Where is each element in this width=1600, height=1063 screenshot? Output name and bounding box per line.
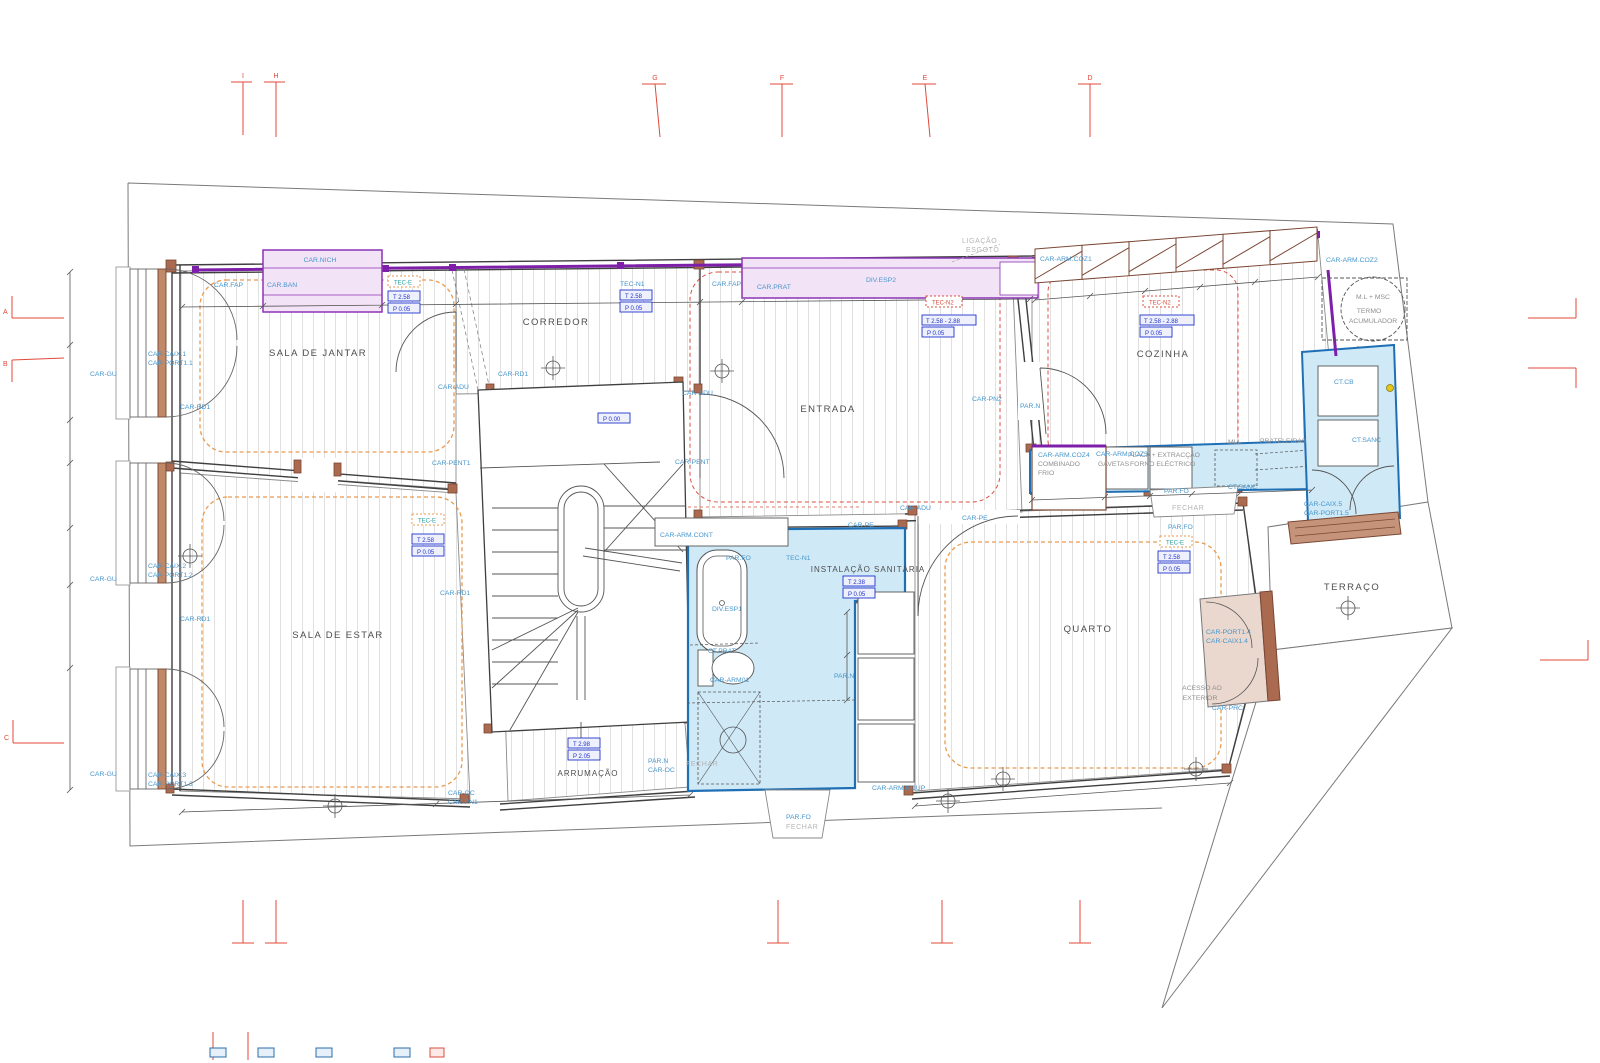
tag-tec-n1-corridor: TEC-N1 (620, 281, 645, 288)
svg-text:TEC-N2: TEC-N2 (932, 301, 954, 307)
label-gavetas: GAVETAS (1098, 461, 1130, 468)
tag-car-oc-1: CAR-OC (448, 790, 475, 797)
svg-text:P 0.05: P 0.05 (393, 307, 411, 313)
tag-car-port1-3: CAR-PORT1.3 (148, 781, 193, 788)
svg-text:T 2.58: T 2.58 (1163, 555, 1181, 561)
room-label-cozinha: COZINHA (1137, 349, 1190, 360)
tag-car-prat: CAR.PRAT (757, 284, 791, 291)
tag-car-gu-3: CAR-GU (90, 771, 117, 778)
room-label-entrada: ENTRADA (800, 404, 855, 415)
label-ligacao: LIGAÇÃO (962, 236, 997, 245)
tag-ct-prat: CT.PRAT (708, 648, 736, 655)
svg-text:TEC-E: TEC-E (394, 281, 412, 287)
tag-ct-cb: CT.CB (1334, 379, 1354, 386)
tag-car-caix3: CAR-CAIX.3 (148, 772, 186, 779)
tag-car-arm-roup: CAR-ARM.ROUP (872, 785, 926, 792)
svg-text:T 2.58: T 2.58 (417, 538, 435, 544)
tag-car-pn1: CAR-PN1 (448, 799, 478, 806)
svg-text:P 0.05: P 0.05 (848, 592, 866, 598)
tag-ct-sanc-1: CT.SANC (1228, 484, 1257, 491)
label-forno: FORNO ELÉCTRICO (1130, 459, 1195, 468)
label-fechar-storage: FECHAR (686, 761, 718, 768)
svg-text:T 2.58: T 2.58 (393, 295, 411, 301)
tag-car-rd1-2: CAR-RD1 (498, 371, 528, 378)
tag-car-pent1: CAR-PENT1 (432, 460, 471, 467)
tag-car-adu-3: CAR-ADU (900, 505, 931, 512)
floor-plan-drawing: I H G F E D A B C SALA DE JANTAR CORREDO… (0, 0, 1600, 1063)
tag-car-arm-coz1: CAR-ARM.COZ1 (1040, 256, 1092, 263)
tag-par-fo-quarto: PAR.FO (1168, 524, 1193, 531)
tag-car-gu-2: CAR-GU (90, 576, 117, 583)
svg-text:P 0.05: P 0.05 (1145, 331, 1163, 337)
svg-text:T 2.58 - 2.88: T 2.58 - 2.88 (1144, 319, 1179, 325)
grid-letter-a: A (3, 309, 8, 316)
tag-par-fo-bath: PAR.FO (726, 555, 751, 562)
svg-text:P 0.05: P 0.05 (1163, 567, 1181, 573)
wardrobe-closet (858, 592, 914, 782)
svg-text:TEC-N2: TEC-N2 (1149, 301, 1171, 307)
svg-text:P 0.05: P 0.05 (417, 550, 435, 556)
label-frio: FRIO (1038, 470, 1054, 477)
tag-car-nich: CAR.NICH (304, 257, 337, 264)
label-combinado: COMBINADO (1038, 461, 1080, 468)
svg-text:T 2.38: T 2.38 (848, 580, 866, 586)
tag-tec-n1-bath: TEC-N1 (786, 555, 811, 562)
tec-n2-badge-cozinha: TEC-N2 (1143, 296, 1179, 307)
tag-car-arm-coz3: CAR-ARM.COZ3 (1096, 451, 1148, 458)
room-label-quarto: QUARTO (1064, 624, 1113, 635)
tag-car-rd1-4: CAR-RD1 (440, 590, 470, 597)
tag-car-rd1-1: CAR-RD1 (180, 404, 210, 411)
label-ml-msc: M.L + MSC (1356, 294, 1390, 301)
tec-n2-badge-entrada: TEC-N2 (926, 296, 962, 307)
label-fechar-bath: FECHAR (786, 824, 818, 831)
tag-car-fap-1: CAR.FAP (214, 282, 244, 289)
tag-car-oc-2: CAR-OC (648, 767, 675, 774)
svg-text:P 0.05: P 0.05 (927, 331, 945, 337)
label-termo-line1: TERMO (1357, 308, 1382, 315)
tag-car-prc: CAR-PRC (1212, 705, 1243, 712)
tag-par-fo-kitchen: PAR.FO (1164, 488, 1189, 495)
tag-car-adu-1: CAR-ADU (438, 384, 469, 391)
grid-letter-c: C (4, 735, 9, 742)
svg-text:P 0.00: P 0.00 (603, 417, 621, 423)
tag-car-port1-4: CAR-PORT1.4 (1206, 629, 1251, 636)
tag-car-pn2: CAR-PN2 (972, 396, 1002, 403)
tag-ct-sanc-2: CT.SANC (1352, 437, 1381, 444)
tag-car-caix1-4: CAR-CAIX1.4 (1206, 638, 1248, 645)
room-label-instalacao-sanitaria: INSTALAÇÃO SANITÁRIA (811, 565, 926, 574)
tag-car-arm-coz4: CAR-ARM.COZ4 (1038, 452, 1090, 459)
tag-par-fo-south: PAR.FO (786, 814, 811, 821)
tag-car-caix2: CAR-CAIX.2 (148, 563, 186, 570)
tec-e-badge-estar: TEC-E (412, 514, 444, 525)
tec-e-badge-jantar: TEC-E (388, 276, 420, 287)
room-label-sala-de-jantar: SALA DE JANTAR (269, 348, 367, 359)
grid-letter-i: I (242, 73, 244, 80)
tag-car-arm-cont: CAR-ARM.CONT (660, 532, 713, 539)
room-label-sala-de-estar: SALA DE ESTAR (292, 630, 383, 641)
svg-text:T 2.58: T 2.58 (625, 294, 643, 300)
tag-car-port1-1: CAR-PORT1.1 (148, 360, 193, 367)
svg-text:TEC-E: TEC-E (1166, 541, 1184, 547)
room-label-arrumacao: ARRUMAÇÃO (557, 769, 618, 778)
grid-letter-b: B (3, 361, 8, 368)
tag-car-rd1-3: CAR-RD1 (180, 616, 210, 623)
tag-car-caix5: CAR-CAIX.5 (1304, 501, 1342, 508)
tec-e-badge-quarto: TEC-E (1160, 536, 1192, 547)
tag-car-gu-1: CAR-GU (90, 371, 117, 378)
tag-car-port1-5: CAR-PORT1.5 (1304, 510, 1349, 517)
tag-car-pe-2: CAR-PE (962, 515, 988, 522)
room-label-terraco: TERRAÇO (1324, 582, 1380, 593)
room-label-acesso-line2: EXTERIOR (1183, 695, 1218, 702)
room-label-acesso-line1: ACESSO AO (1182, 685, 1222, 692)
label-mll: MLL (1228, 439, 1241, 446)
grid-letter-g: G (652, 75, 657, 82)
tag-car-caix1: CAR-CAIX.1 (148, 351, 186, 358)
tag-car-adu-2: CAR-ADU (682, 390, 713, 397)
label-fechar-kitchen: FECHAR (1172, 505, 1204, 512)
tag-car-pent: CAR-PENT (675, 459, 710, 466)
grid-letter-d: D (1087, 75, 1092, 82)
level-badge-stair: P 0.00 (598, 413, 630, 423)
tag-car-pe-1: CAR-PE (848, 522, 874, 529)
label-prateleiras: PRATELEIRAS (1260, 438, 1307, 445)
svg-text:T 2.58 - 2.88: T 2.58 - 2.88 (926, 319, 961, 325)
grid-letter-f: F (780, 75, 784, 82)
tag-car-arm-coz2: CAR-ARM.COZ2 (1326, 257, 1378, 264)
svg-text:T 2.98: T 2.98 (573, 742, 591, 748)
tag-car-arm01: CAR-ARM01 (710, 677, 749, 684)
svg-text:P 2.05: P 2.05 (573, 754, 591, 760)
svg-text:P 0.05: P 0.05 (625, 306, 643, 312)
tag-car-port1-2: CAR-PORT1.2 (148, 572, 193, 579)
tag-par-n-bath: PAR.N (834, 673, 854, 680)
tag-car-fap-2: CAR.FAP (712, 281, 742, 288)
tag-par-n-storage: PAR.N (648, 758, 668, 765)
valve-dot-icon (1387, 385, 1394, 392)
grid-letter-h: H (273, 73, 278, 80)
grid-letter-e: E (923, 75, 928, 82)
tag-car-ban: CAR.BAN (267, 282, 297, 289)
svg-text:TEC-E: TEC-E (418, 519, 436, 525)
tag-div-esp1: DIV.ESP1 (712, 606, 742, 613)
label-termo-line2: ACUMULADOR (1349, 318, 1397, 325)
tag-div-esp2: DIV.ESP2 (866, 277, 896, 284)
floor-plan-canvas: I H G F E D A B C SALA DE JANTAR CORREDO… (0, 0, 1600, 1063)
room-label-corredor: CORREDOR (523, 317, 590, 328)
legend-fragments (210, 1048, 444, 1057)
tag-par-n-kitchen: PAR.N (1020, 403, 1040, 410)
